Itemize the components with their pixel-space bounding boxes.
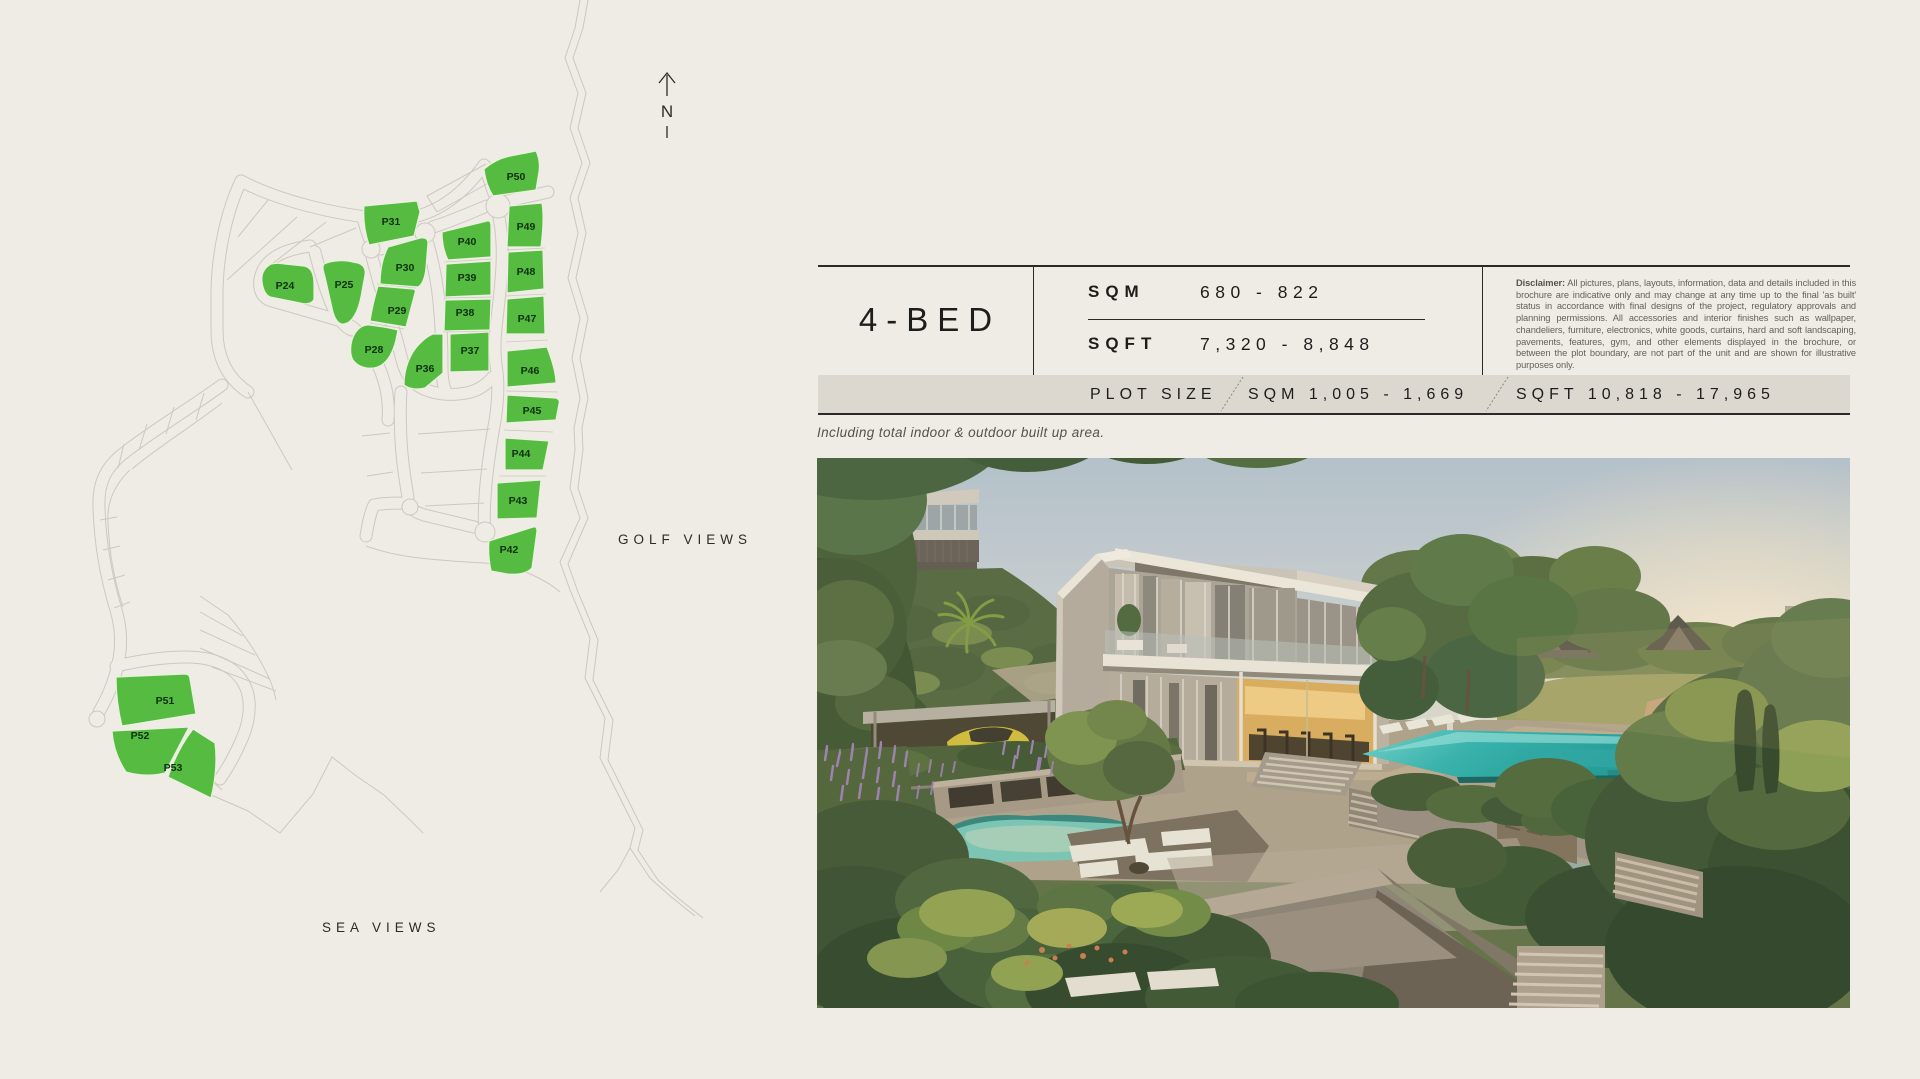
svg-text:P43: P43 [509,495,528,507]
svg-text:P38: P38 [456,307,475,319]
svg-text:P37: P37 [461,345,480,357]
svg-text:P31: P31 [382,216,401,228]
svg-text:P51: P51 [156,695,175,707]
svg-text:P52: P52 [131,730,150,742]
svg-text:P29: P29 [388,305,407,317]
svg-text:P47: P47 [518,313,537,325]
svg-text:P24: P24 [276,280,295,292]
svg-text:P45: P45 [523,405,542,417]
svg-text:P39: P39 [458,272,477,284]
svg-text:P25: P25 [335,279,354,291]
svg-text:P30: P30 [396,262,415,274]
svg-text:P40: P40 [458,236,477,248]
svg-text:P28: P28 [365,344,384,356]
svg-text:N: N [661,102,673,121]
svg-text:P53: P53 [164,762,183,774]
svg-text:P36: P36 [416,363,435,375]
svg-text:P46: P46 [521,365,540,377]
svg-text:P42: P42 [500,544,519,556]
svg-text:P44: P44 [512,448,531,460]
svg-text:P49: P49 [517,221,536,233]
svg-text:P50: P50 [507,171,526,183]
svg-text:P48: P48 [517,266,536,278]
